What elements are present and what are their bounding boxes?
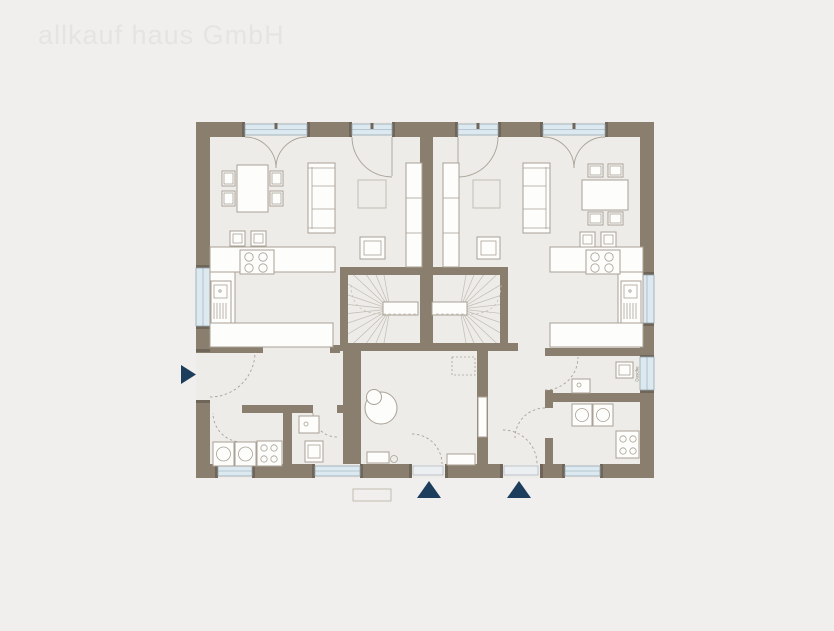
cooktop-left: [240, 250, 274, 274]
radiator-hall: [447, 454, 475, 465]
shower-label-left: Dusche: [288, 425, 293, 441]
utility-room-left: [213, 441, 282, 466]
armchair-right: [477, 237, 500, 259]
entrance-arrow-bottom-left: [417, 481, 441, 498]
window-bottom-wc-left: [315, 466, 360, 476]
washbasin-right: [572, 379, 590, 393]
window-right-wall-bath: [640, 357, 654, 390]
shower-label-right: Dusche: [589, 396, 605, 401]
toilet-right: [616, 362, 633, 378]
toilet-left: [305, 441, 323, 462]
stair-landing-right: [432, 302, 467, 315]
armchair-left: [360, 237, 385, 259]
cooktop-right: [586, 250, 620, 274]
sofa-right: [523, 163, 550, 233]
entrance-arrow-bottom-right: [507, 481, 531, 498]
laundry-sink-left: [257, 441, 282, 466]
party-wall-niche: [478, 397, 487, 437]
tv-board-right: [443, 163, 459, 267]
floor-plan: allkauf haus GmbH: [0, 0, 834, 626]
sofa-left: [308, 163, 335, 233]
shower-label-right-wall: Dusche: [635, 366, 640, 382]
laundry-sink-right: [616, 431, 639, 458]
tv-board-left: [406, 163, 422, 267]
entrance-arrow-left: [181, 365, 196, 384]
washer-left-1: [213, 442, 234, 466]
kitchen-counter-bottom-right: [550, 323, 643, 347]
washer-left-2: [235, 442, 256, 466]
washer-right-2: [593, 404, 613, 426]
fridge-right: [621, 281, 641, 323]
washbasin-left: [299, 416, 319, 433]
window-left-wall: [196, 268, 210, 326]
washer-right-1: [572, 404, 592, 426]
window-bottom-utility-left: [218, 466, 252, 476]
kitchen-counter-bottom-left: [210, 323, 333, 347]
scale-box: [353, 489, 391, 501]
watermark-text: allkauf haus GmbH: [38, 20, 285, 50]
window-bottom-utility-right: [565, 466, 600, 476]
stair-landing-left: [383, 302, 418, 315]
fridge-left: [211, 281, 231, 323]
